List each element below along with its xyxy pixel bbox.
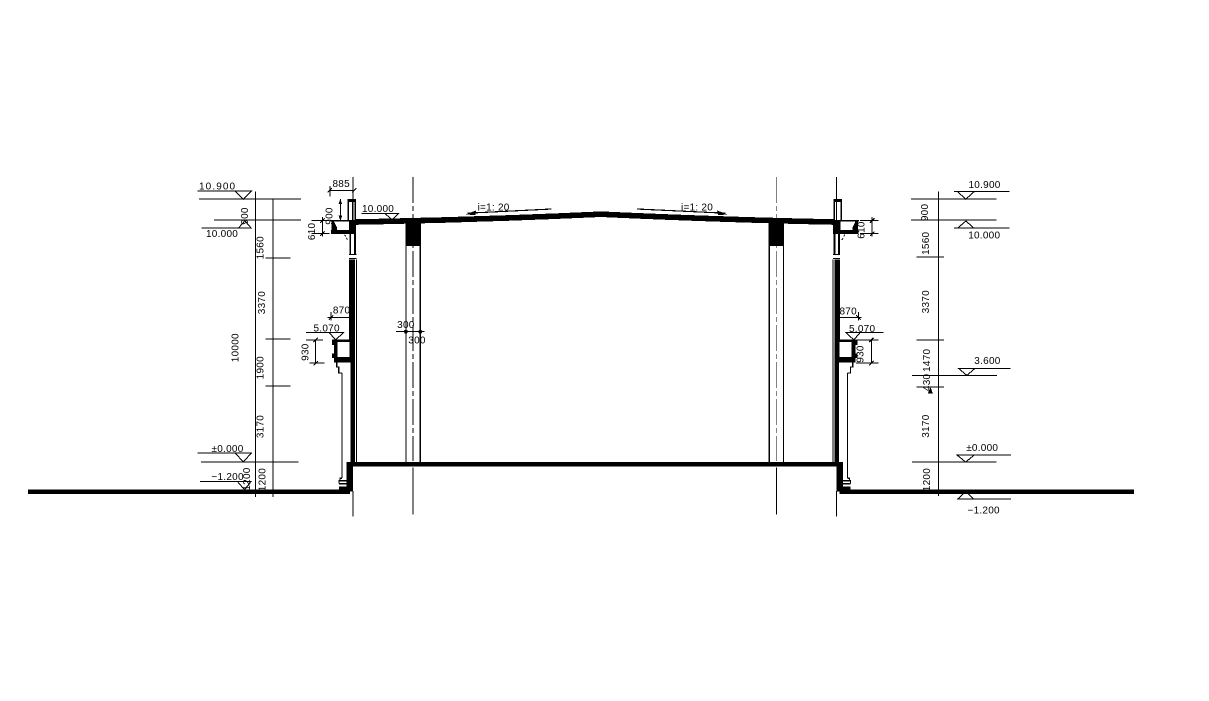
svg-text:3170: 3170 <box>921 414 932 437</box>
svg-text:10.000: 10.000 <box>206 229 238 240</box>
svg-text:±0.000: ±0.000 <box>212 444 244 455</box>
svg-text:1200: 1200 <box>242 467 253 490</box>
svg-text:3.600: 3.600 <box>974 356 1000 367</box>
svg-text:10.900: 10.900 <box>199 182 236 193</box>
svg-text:885: 885 <box>332 179 350 190</box>
svg-text:300: 300 <box>397 320 415 331</box>
svg-text:5.070: 5.070 <box>314 323 340 334</box>
svg-text:10.000: 10.000 <box>968 230 1000 241</box>
svg-text:930: 930 <box>856 345 867 363</box>
svg-text:3370: 3370 <box>921 290 932 313</box>
svg-text:610: 610 <box>856 221 867 239</box>
svg-text:3370: 3370 <box>257 291 268 314</box>
svg-text:−1.200: −1.200 <box>968 506 1001 517</box>
svg-text:900: 900 <box>240 207 251 225</box>
svg-text:5.070: 5.070 <box>849 324 875 335</box>
svg-text:870: 870 <box>333 305 351 316</box>
svg-text:430: 430 <box>922 373 933 391</box>
svg-text:10.900: 10.900 <box>969 180 1001 191</box>
svg-text:300: 300 <box>408 335 426 346</box>
svg-text:3170: 3170 <box>255 415 266 438</box>
svg-text:900: 900 <box>920 203 931 221</box>
svg-text:1560: 1560 <box>255 236 266 259</box>
svg-text:1470: 1470 <box>922 348 933 371</box>
svg-text:−1.200: −1.200 <box>211 472 244 483</box>
svg-text:1200: 1200 <box>258 468 269 491</box>
svg-text:1560: 1560 <box>921 231 932 254</box>
svg-text:1900: 1900 <box>255 356 266 379</box>
svg-text:930: 930 <box>301 343 312 361</box>
svg-text:10000: 10000 <box>231 333 242 362</box>
svg-text:610: 610 <box>307 222 318 240</box>
svg-text:900: 900 <box>325 207 336 225</box>
svg-text:1200: 1200 <box>922 468 933 491</box>
svg-text:±0.000: ±0.000 <box>966 443 998 454</box>
svg-text:870: 870 <box>839 306 857 317</box>
